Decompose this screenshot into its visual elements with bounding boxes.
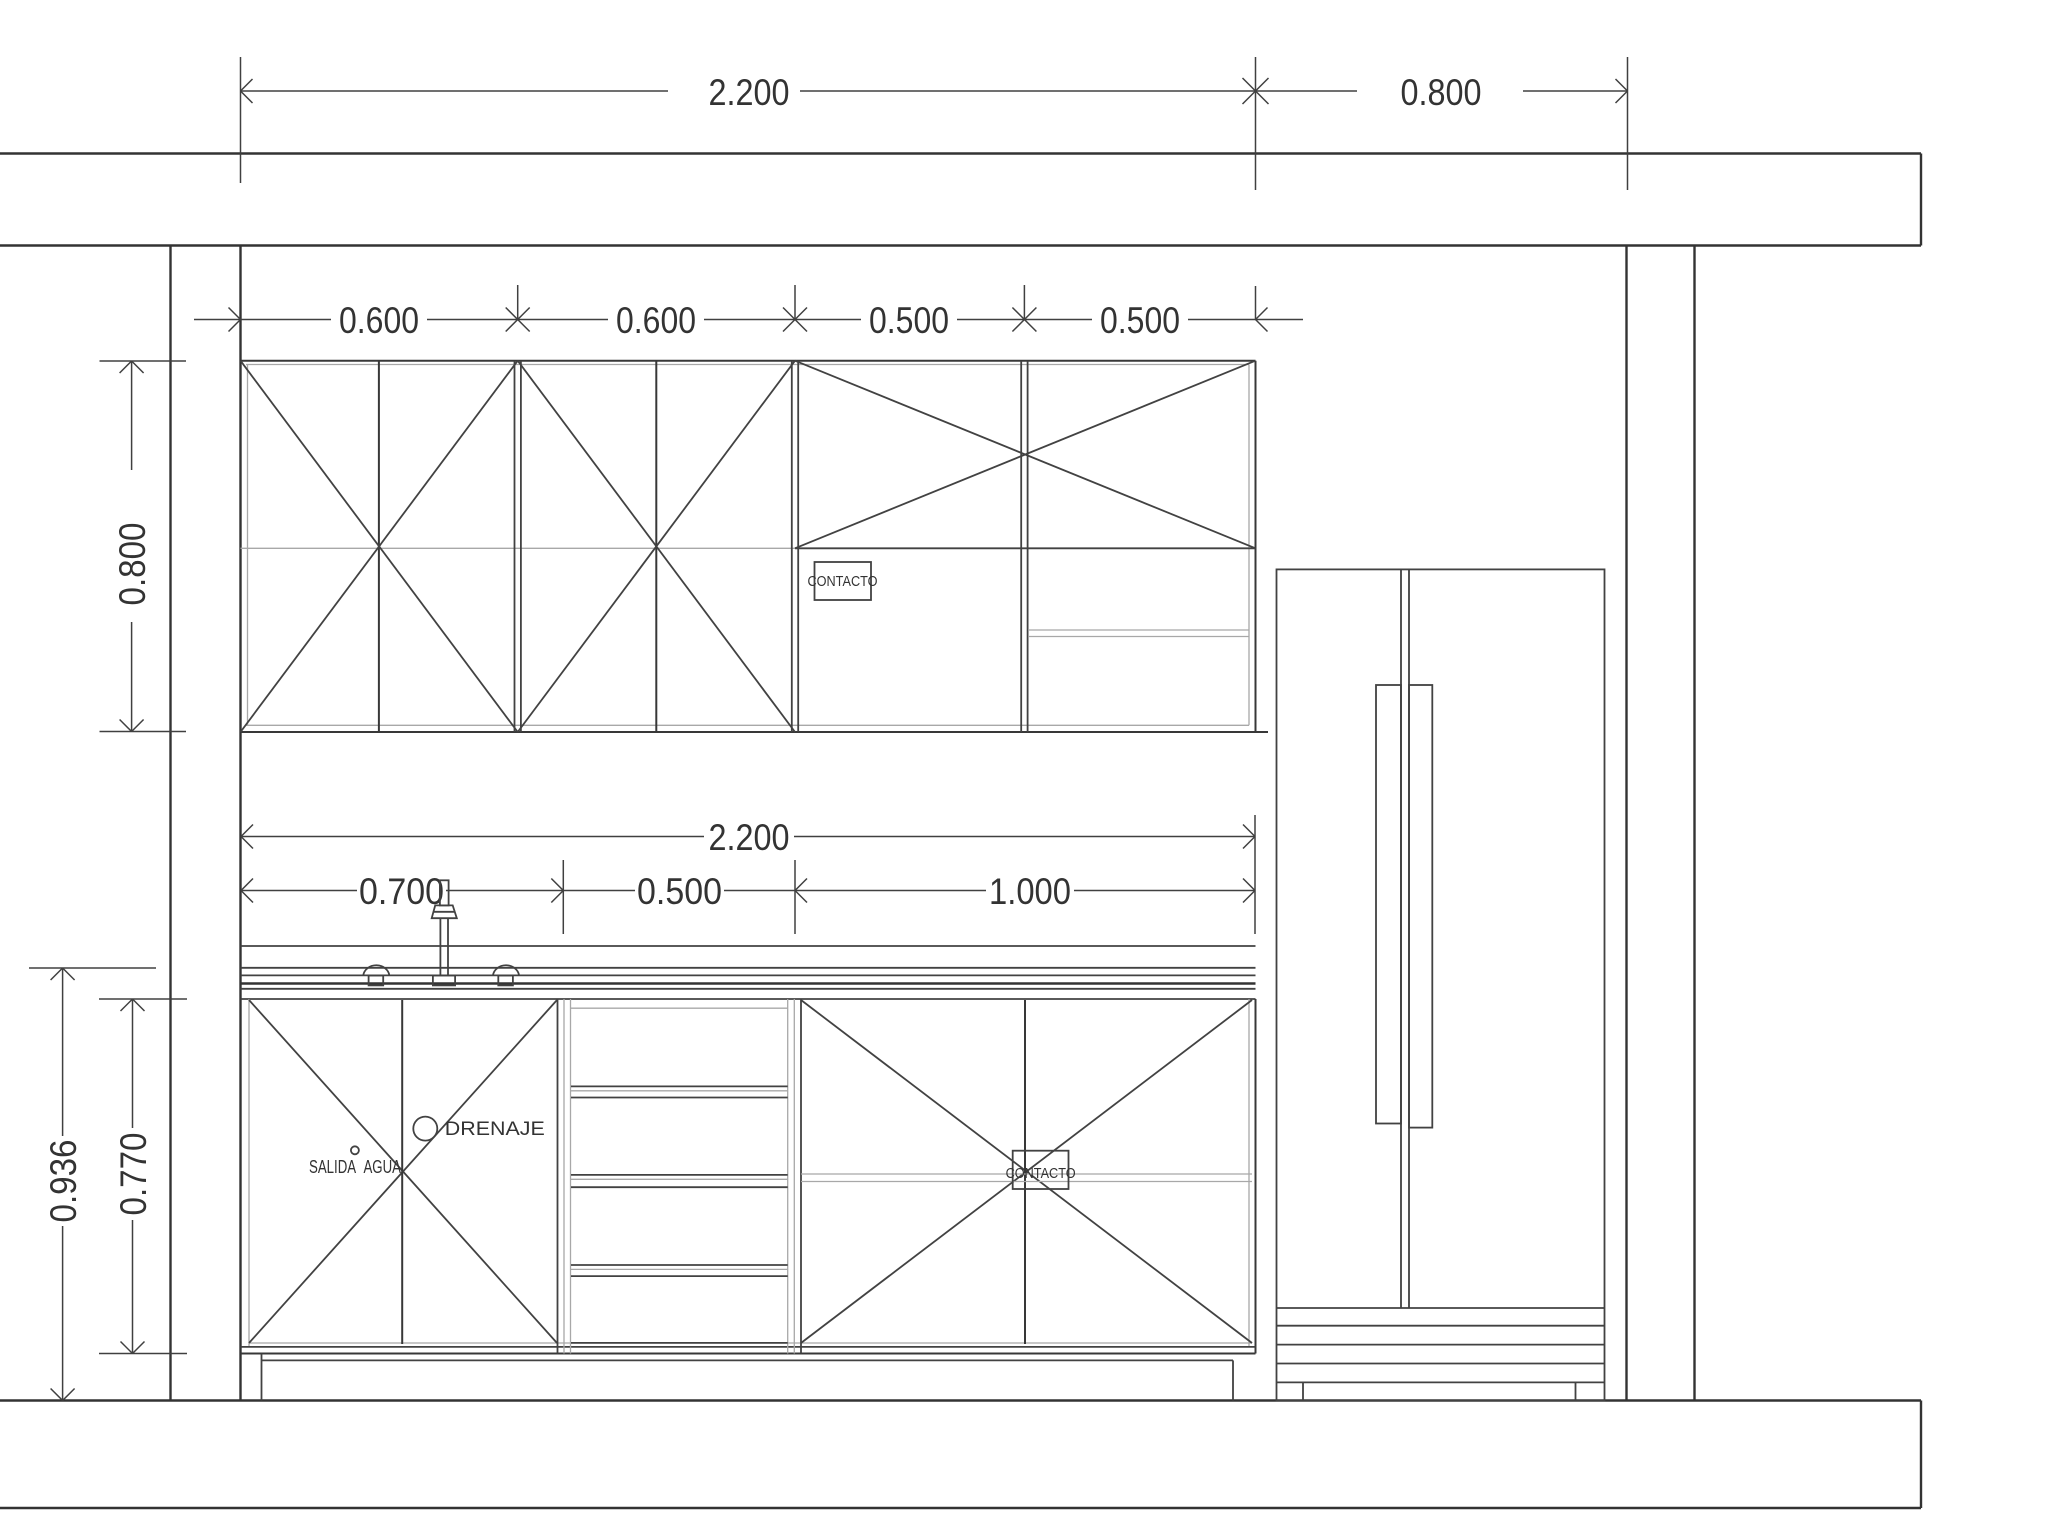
svg-text:0.600: 0.600 bbox=[339, 300, 419, 341]
svg-text:2.200: 2.200 bbox=[709, 72, 790, 113]
svg-text:CONTACTO: CONTACTO bbox=[1006, 1165, 1076, 1182]
svg-text:0.600: 0.600 bbox=[616, 300, 696, 341]
svg-text:SALIDA AGUA: SALIDA AGUA bbox=[309, 1157, 401, 1177]
svg-text:0.800: 0.800 bbox=[1401, 72, 1482, 113]
svg-text:0.500: 0.500 bbox=[1100, 300, 1180, 341]
svg-text:0.500: 0.500 bbox=[869, 300, 949, 341]
svg-text:0.700: 0.700 bbox=[359, 871, 444, 912]
svg-text:DRENAJE: DRENAJE bbox=[445, 1119, 545, 1140]
svg-text:0.770: 0.770 bbox=[113, 1133, 154, 1216]
svg-text:0.800: 0.800 bbox=[112, 523, 153, 606]
svg-text:2.200: 2.200 bbox=[709, 817, 790, 858]
svg-text:CONTACTO: CONTACTO bbox=[808, 573, 878, 590]
svg-text:1.000: 1.000 bbox=[989, 871, 1071, 912]
svg-text:0.500: 0.500 bbox=[637, 871, 722, 912]
svg-text:0.936: 0.936 bbox=[43, 1140, 84, 1223]
